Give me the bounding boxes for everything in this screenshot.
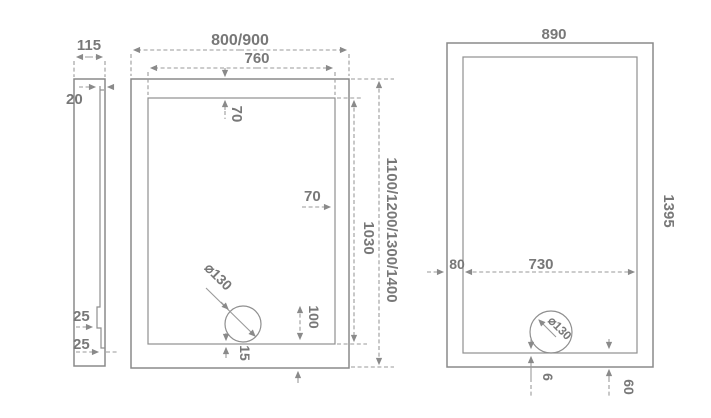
dim-70-top-label: 70 <box>228 106 245 123</box>
dim-15-label: 15 <box>237 345 253 361</box>
bottom-inner-outline <box>463 57 637 353</box>
dim-115-label: 115 <box>77 37 101 54</box>
drawing-canvas: 115 20 25 25 800/900 760 70 70 <box>0 0 711 418</box>
dim-100-label: 100 <box>306 305 322 329</box>
dim-diameter-bottom-label: ⌀130 <box>545 314 574 343</box>
dim-70-side-label: 70 <box>304 188 321 205</box>
dim-1030-label: 1030 <box>360 221 377 254</box>
front-drain-leader-arrow2 <box>221 302 228 309</box>
dim-760-label: 760 <box>244 50 269 67</box>
dim-890-label: 890 <box>541 26 566 43</box>
dim-80-label: 80 <box>449 256 465 272</box>
dim-1395-label: 1395 <box>660 194 677 227</box>
dim-25-lower-label: 25 <box>73 336 90 353</box>
front-drain-leader <box>206 288 255 336</box>
dim-730-label: 730 <box>528 256 553 273</box>
dim-60-label: 60 <box>621 379 637 395</box>
front-view: 800/900 760 70 70 1030 1100/1200/1300/14… <box>131 32 400 383</box>
shower-tray-dimension-drawing: 115 20 25 25 800/900 760 70 70 <box>0 0 711 418</box>
dim-20-label: 20 <box>66 91 83 108</box>
dim-800-900-label: 800/900 <box>211 32 269 49</box>
side-profile-view: 115 20 25 25 <box>66 37 118 366</box>
dim-6-label: 6 <box>540 373 556 381</box>
dim-height-label: 1100/1200/1300/1400 <box>383 157 400 302</box>
side-inner-profile-line <box>97 86 105 348</box>
dim-25-upper-label: 25 <box>73 308 90 325</box>
bottom-view: 890 1395 80 730 ⌀130 6 60 <box>427 26 677 398</box>
